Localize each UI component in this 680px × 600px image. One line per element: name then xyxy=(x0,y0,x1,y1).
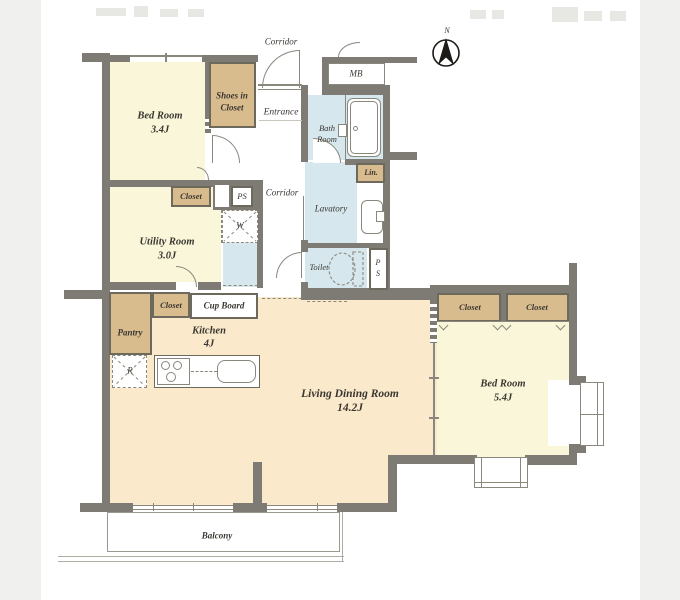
sliding-partition-hatch xyxy=(430,300,437,343)
utility-inner-door-arc xyxy=(197,167,209,180)
wall-segment xyxy=(525,455,577,465)
entrance-label: Entrance xyxy=(264,107,299,118)
sliding-door-track xyxy=(433,343,435,455)
ghost-mark xyxy=(96,8,126,16)
sliding-window-line xyxy=(267,505,337,506)
closet-front-line xyxy=(437,321,569,322)
living-dining-floor-lower xyxy=(110,458,390,505)
wall-pillar xyxy=(253,462,262,507)
wall-segment xyxy=(388,455,477,464)
laundry-alcove-floor xyxy=(223,243,258,287)
wall-segment xyxy=(200,55,258,62)
bedroom-closet-label-1: Closet xyxy=(459,302,481,312)
entrance-step-line xyxy=(259,120,302,121)
utility-closet-label: Closet xyxy=(180,191,202,201)
wall-segment xyxy=(569,263,577,384)
refrigerator-label: R xyxy=(127,366,133,377)
right-margin xyxy=(640,0,680,600)
alcove-threshold xyxy=(223,285,258,286)
entrance-step-line xyxy=(258,84,302,86)
window-line xyxy=(520,458,521,487)
washbasin-faucet-icon xyxy=(376,211,385,222)
ghost-mark xyxy=(160,9,178,17)
balcony-outer-line xyxy=(342,512,343,561)
sliding-window-line xyxy=(133,505,233,506)
lavatory-label: Lavatory xyxy=(315,204,348,215)
counter-dash-line xyxy=(191,371,217,372)
ghost-mark xyxy=(470,10,486,19)
floorplan-canvas: Corridor Bed Room 3.4J Shoes in Closet E… xyxy=(0,0,680,600)
kitchen-size: 4J xyxy=(204,339,215,352)
track-tick xyxy=(429,417,439,419)
bedroom-small-name: Bed Room xyxy=(137,111,182,124)
ps-right-label-1: P xyxy=(376,258,381,268)
wall-segment xyxy=(322,85,390,95)
ghost-mark xyxy=(610,11,626,21)
shoes-closet-label-2: Closet xyxy=(220,103,243,114)
balcony-label: Balcony xyxy=(202,531,233,542)
burner-icon xyxy=(161,361,170,370)
ghost-mark xyxy=(134,6,148,17)
track-tick xyxy=(429,377,439,379)
balcony-outer-line xyxy=(58,556,344,557)
wall-hatch-line xyxy=(307,301,347,302)
bedroom-main-name: Bed Room xyxy=(480,379,525,392)
linen-label: Lin. xyxy=(364,168,378,178)
bedroom-small-size: 3.4J xyxy=(151,125,169,138)
bay-window-line xyxy=(581,414,603,415)
cup-board-label: Cup Board xyxy=(204,301,245,312)
sliding-window-line xyxy=(267,509,337,510)
bedroom-main-size: 5.4J xyxy=(494,393,512,406)
corridor-threshold xyxy=(262,298,302,299)
bathroom-label-1: Bath xyxy=(319,123,335,133)
meter-box-door-arc xyxy=(338,42,360,57)
window-tick xyxy=(165,53,167,62)
toilet-label: Toilet xyxy=(309,262,328,272)
north-arrow-icon xyxy=(430,37,464,69)
pantry-label: Pantry xyxy=(117,328,142,339)
kitchen-closet-label: Closet xyxy=(160,300,182,310)
lavatory-door-line xyxy=(303,196,304,240)
window-tick xyxy=(153,503,154,511)
balcony-outer-line xyxy=(58,561,344,562)
ps-right-label-2: S xyxy=(376,269,380,279)
wall-segment xyxy=(301,85,308,162)
ghost-mark xyxy=(552,7,578,22)
ghost-mark xyxy=(584,11,602,21)
utility-room-size: 3.0J xyxy=(158,251,176,264)
ghost-mark xyxy=(492,10,504,19)
bathroom-label-2: Room xyxy=(317,134,337,144)
burner-icon xyxy=(166,372,176,382)
window-tick xyxy=(193,503,194,511)
window-tick xyxy=(317,503,318,511)
ps-left-label: PS xyxy=(237,191,246,201)
alcove-threshold xyxy=(221,210,222,243)
kitchen-name: Kitchen xyxy=(192,326,226,339)
sink-icon xyxy=(217,360,256,383)
corridor-top-label: Corridor xyxy=(265,37,298,48)
wall-segment xyxy=(102,53,110,292)
wall-segment xyxy=(430,285,577,293)
left-margin xyxy=(0,0,41,600)
shower-control-icon xyxy=(338,124,347,137)
wall-segment xyxy=(337,503,397,512)
living-dining-name: Living Dining Room xyxy=(301,388,399,402)
toilet-icon xyxy=(326,248,368,290)
wall-segment xyxy=(80,503,133,512)
burner-icon xyxy=(173,361,182,370)
wall-segment xyxy=(390,152,417,160)
north-label: N xyxy=(444,26,449,36)
bay-window-alcove xyxy=(548,380,569,446)
washer-label: W xyxy=(236,221,244,232)
meter-box-label: MB xyxy=(350,69,363,80)
toilet-door-arc xyxy=(276,252,302,278)
pantry-box xyxy=(109,292,152,355)
utility-room-name: Utility Room xyxy=(139,237,194,250)
bath-drain-icon xyxy=(353,126,358,131)
ghost-mark xyxy=(188,9,204,17)
wall-segment xyxy=(198,282,221,290)
living-dining-size: 14.2J xyxy=(337,402,363,416)
entrance-step-line xyxy=(258,89,302,90)
bedroom-small-door-arc xyxy=(212,135,240,163)
shoes-closet-label-1: Shoes in xyxy=(216,91,248,102)
window-line xyxy=(481,458,482,487)
bedroom-closet-label-2: Closet xyxy=(526,302,548,312)
wall-segment xyxy=(102,282,176,290)
corridor-mid-label: Corridor xyxy=(266,188,299,199)
sliding-window-line xyxy=(133,509,233,510)
entrance-door-arc xyxy=(262,50,300,88)
wall-opening xyxy=(215,185,229,207)
